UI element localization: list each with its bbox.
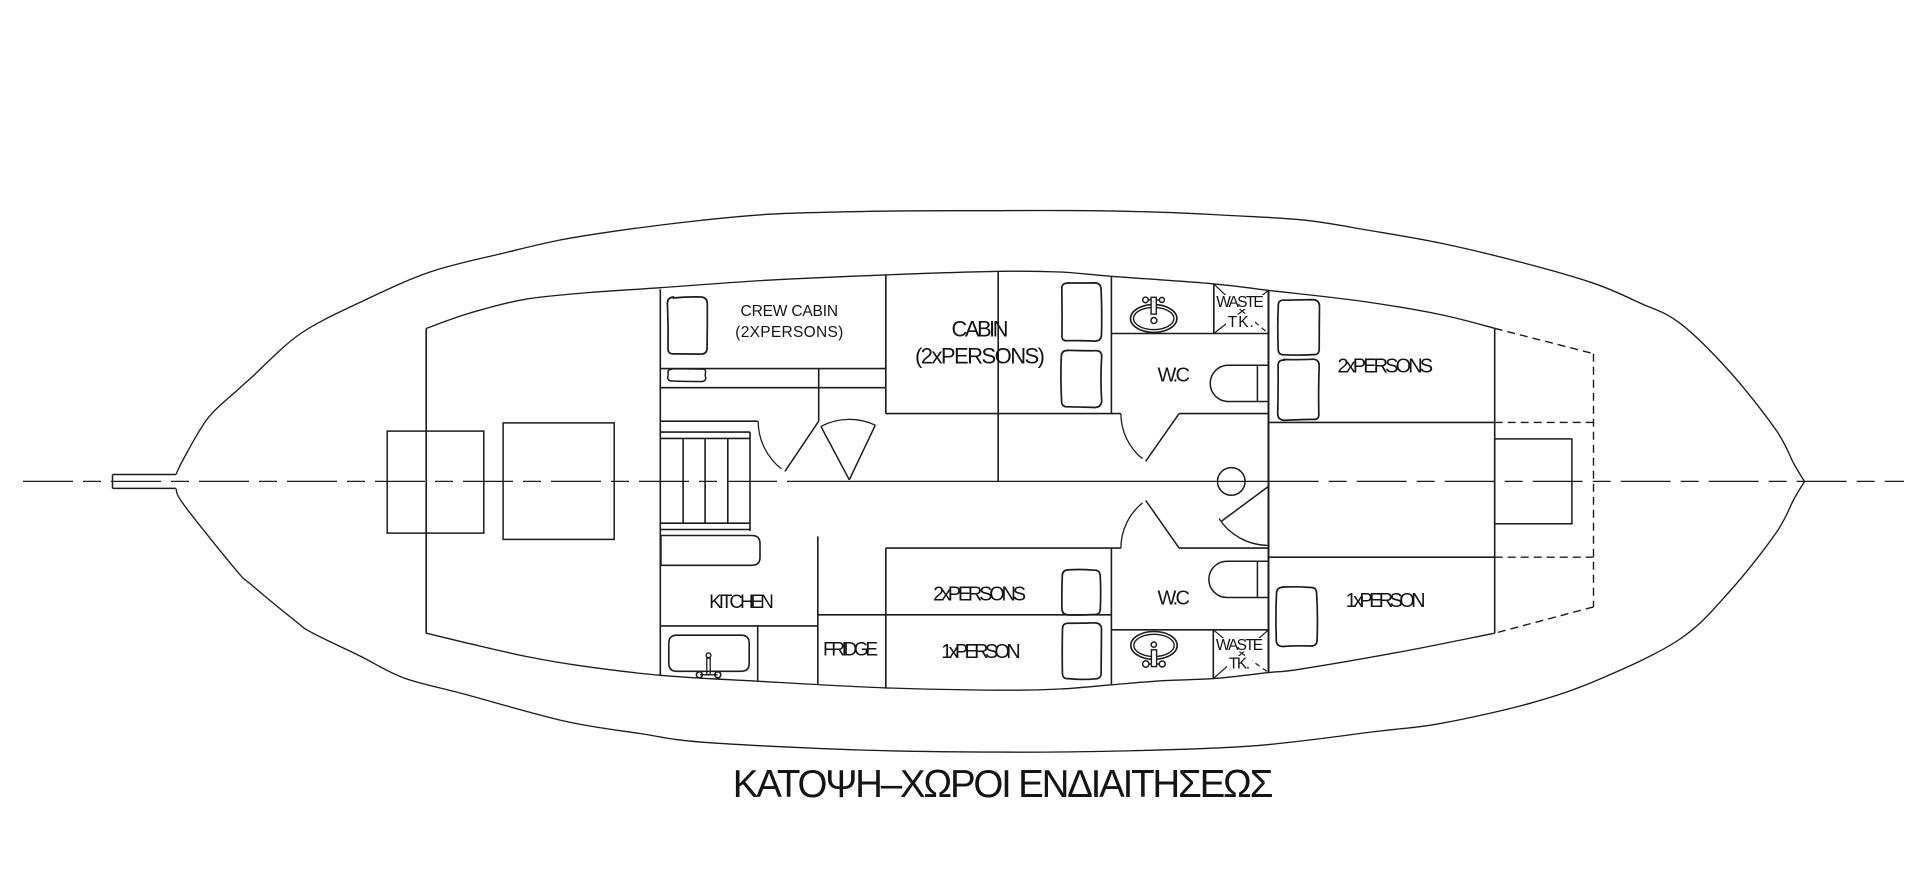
svg-text:1xPERSON: 1xPERSON <box>941 641 1020 663</box>
svg-text:TK.: TK. <box>1228 314 1254 331</box>
svg-text:TK.: TK. <box>1229 655 1250 672</box>
svg-text:WASTE: WASTE <box>1216 294 1264 311</box>
svg-text:KITCHEN: KITCHEN <box>709 592 774 613</box>
svg-text:1xPERSON: 1xPERSON <box>1346 590 1426 612</box>
svg-text:2xPERSONS: 2xPERSONS <box>933 584 1026 606</box>
svg-text:ΚΑΤΟΨΗ–ΧΩΡΟΙ ΕΝΔΙΑΙΤΗΣΕΩΣ: ΚΑΤΟΨΗ–ΧΩΡΟΙ ΕΝΔΙΑΙΤΗΣΕΩΣ <box>733 763 1274 806</box>
svg-text:FRIDGE: FRIDGE <box>823 640 878 661</box>
svg-text:(2XPERSONS): (2XPERSONS) <box>735 324 843 341</box>
svg-text:WASTE: WASTE <box>1216 637 1263 654</box>
svg-text:CREW CABIN: CREW CABIN <box>741 303 839 320</box>
svg-text:(2xPERSONS): (2xPERSONS) <box>915 344 1045 369</box>
svg-text:W.C: W.C <box>1157 364 1190 386</box>
svg-text:2xPERSONS: 2xPERSONS <box>1337 355 1433 377</box>
svg-text:W.C: W.C <box>1157 587 1190 609</box>
svg-text:CABIN: CABIN <box>952 317 1009 342</box>
